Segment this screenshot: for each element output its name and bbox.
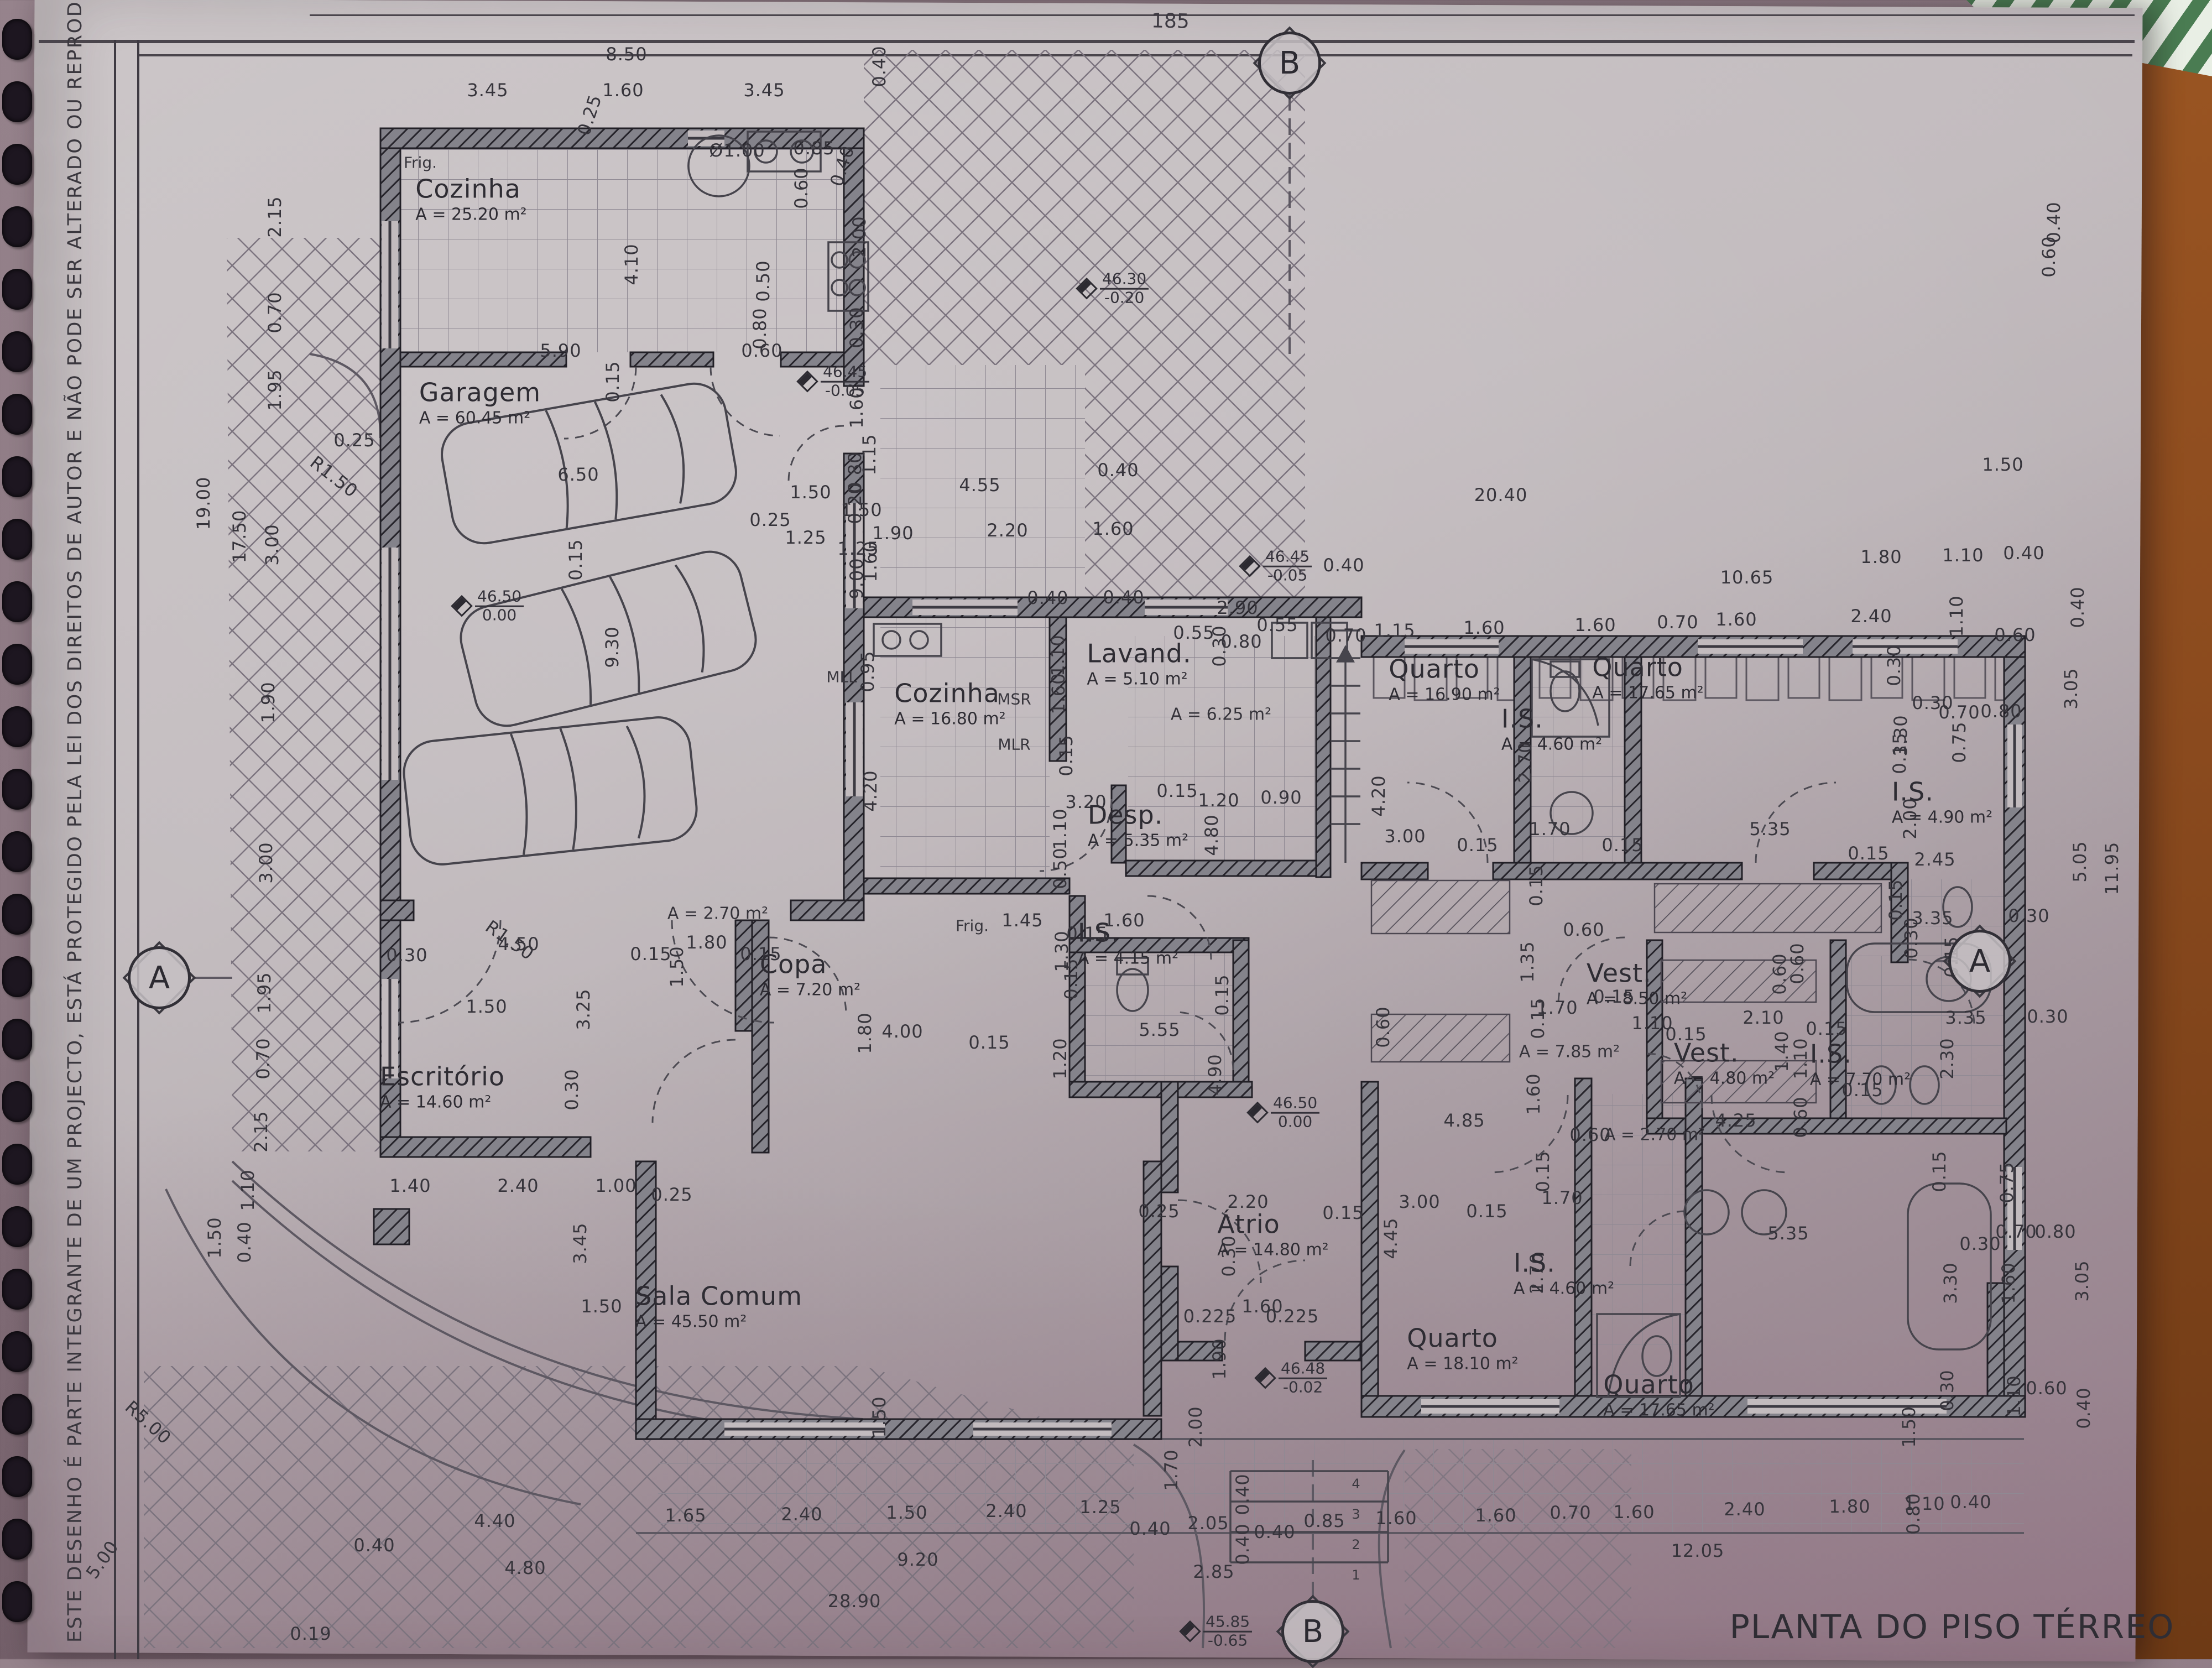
spiral-coil xyxy=(2,769,32,810)
spiral-coil xyxy=(2,19,32,60)
spiral-coil xyxy=(2,1206,32,1247)
spiral-coil xyxy=(2,1394,32,1435)
spiral-coil xyxy=(2,1269,32,1310)
spiral-coil xyxy=(2,1019,32,1060)
spiral-coil xyxy=(2,644,32,685)
spiral-coil xyxy=(2,581,32,622)
spiral-coil xyxy=(2,394,32,435)
floor-plan-svg xyxy=(0,0,2212,1659)
spiral-coil xyxy=(2,456,32,497)
spiral-coil xyxy=(2,144,32,185)
spiral-binding xyxy=(0,0,50,1659)
drawing-title: PLANTA DO PISO TÉRREO xyxy=(1730,1608,2175,1646)
cars xyxy=(401,379,763,868)
copyright-text: ESTE DESENHO É PARTE INTEGRANTE DE UM PR… xyxy=(64,66,86,1643)
spiral-coil xyxy=(2,81,32,122)
page-number: 185 xyxy=(1151,9,1190,33)
photo-of-floor-plan: { "page":{ "number":"185", "title":"PLAN… xyxy=(0,0,2212,1659)
spiral-coil xyxy=(2,1456,32,1497)
spiral-coil xyxy=(2,1081,32,1122)
spiral-coil xyxy=(2,1331,32,1372)
spiral-coil xyxy=(2,1519,32,1560)
spiral-coil xyxy=(2,331,32,372)
spiral-coil xyxy=(2,1144,32,1185)
spiral-coil xyxy=(2,206,32,247)
wardrobes xyxy=(1371,880,1881,1103)
spiral-coil xyxy=(2,956,32,997)
spiral-coil xyxy=(2,269,32,310)
spiral-coil xyxy=(2,519,32,560)
spiral-coil xyxy=(2,831,32,872)
spiral-coil xyxy=(2,706,32,747)
spiral-coil xyxy=(2,1581,32,1622)
spiral-coil xyxy=(2,894,32,935)
